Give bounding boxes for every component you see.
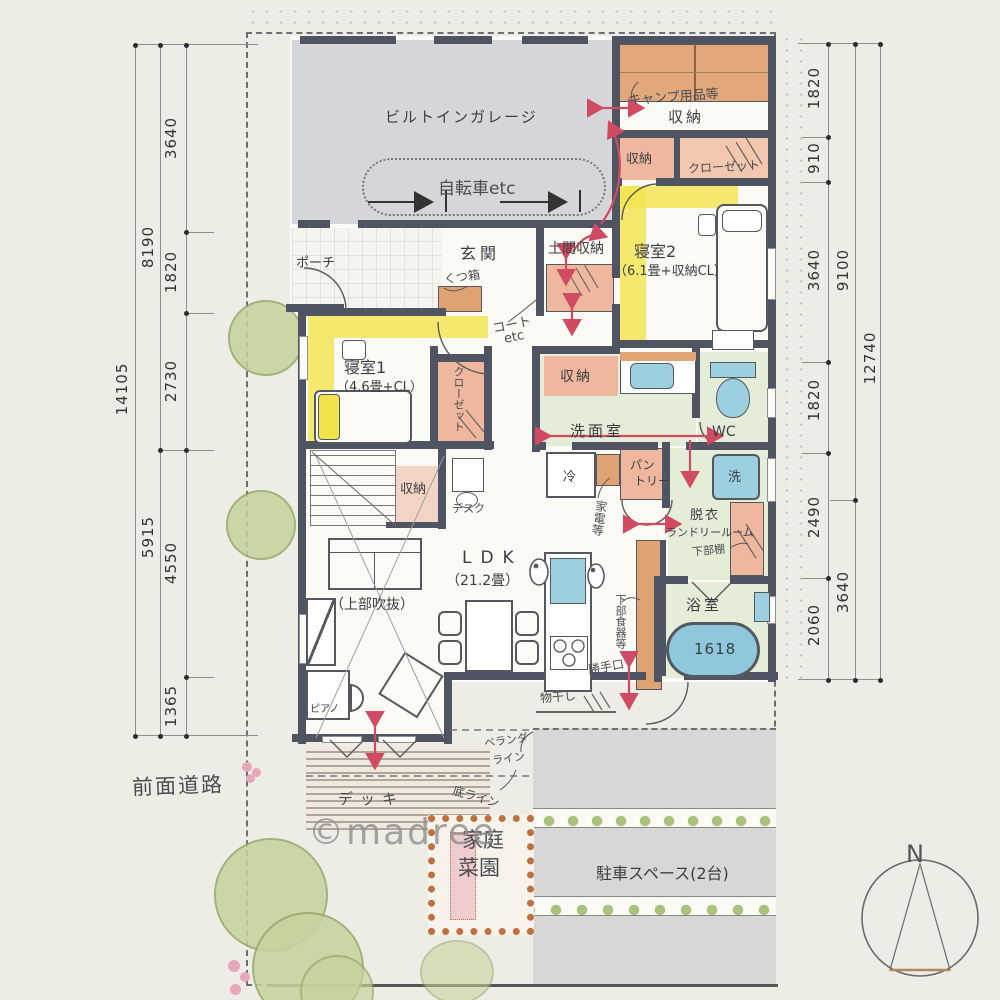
- dining-chair: [515, 640, 539, 665]
- dim-dot: [826, 42, 831, 47]
- dim-dot: [158, 43, 163, 48]
- parking-area: [533, 728, 776, 984]
- compass-n-label: N: [906, 840, 924, 868]
- wall: [536, 220, 544, 316]
- dim-line-left-mid: [160, 45, 161, 736]
- pantry-label-1: パン: [630, 456, 655, 473]
- compass-icon: [862, 860, 978, 976]
- pantry-label-2: トリー: [634, 472, 670, 489]
- bedroom1-name: 寝室1: [344, 354, 386, 378]
- dim-dot: [184, 311, 189, 316]
- parking-green-strip: [533, 896, 776, 916]
- bedroom2-size: （6.1畳+収納CL）: [614, 260, 727, 279]
- dim-label: 2060: [805, 595, 821, 655]
- dim-label: 1820: [805, 58, 821, 118]
- dim-label: 2730: [162, 351, 178, 411]
- window: [767, 388, 776, 418]
- doma-shelf: [546, 264, 614, 312]
- pillow-bedroom1: [318, 394, 340, 440]
- entrance-label: 玄関: [460, 240, 500, 264]
- wall: [292, 734, 452, 742]
- dim-tick: [135, 735, 258, 736]
- dim-dot: [853, 498, 858, 503]
- parking-label: 駐車スペース(2台): [596, 860, 729, 884]
- storage-small-label: 収納: [626, 148, 652, 167]
- washer-label: 洗: [728, 466, 741, 485]
- doma-storage-label: 土間収納: [548, 238, 604, 258]
- wash-storage-label: 収納: [560, 366, 592, 386]
- ldk-name: LDK: [462, 548, 523, 568]
- dim-dot: [826, 451, 831, 456]
- wall: [768, 36, 776, 348]
- bicycle-label: 自転車etc: [438, 174, 515, 199]
- dim-dot: [133, 734, 138, 739]
- floor-plan-canvas: 3640 1820 2730 4550 1365 8190 5915 14105…: [0, 0, 1000, 1000]
- dim-tick: [802, 578, 828, 579]
- desk: [452, 458, 484, 492]
- dim-tick: [830, 500, 855, 501]
- dim-label: 1365: [162, 676, 178, 736]
- flowers: [228, 960, 240, 972]
- wall: [298, 220, 330, 228]
- front-road-label: 前面道路: [132, 768, 225, 801]
- dining-chair: [515, 611, 539, 636]
- dim-dot: [184, 230, 189, 235]
- wall: [674, 133, 680, 180]
- wall: [300, 36, 396, 44]
- piano-label: ピアノ: [310, 700, 339, 715]
- dim-label: 3640: [162, 108, 178, 168]
- camp-storage-label-2: 収納: [668, 106, 704, 127]
- dim-line-left-inner: [186, 45, 187, 736]
- wall: [484, 346, 492, 450]
- wall: [532, 346, 540, 452]
- dim-label: 1820: [162, 242, 178, 302]
- dining-chair: [438, 611, 462, 636]
- garage-label: ビルトインガレージ: [385, 106, 538, 127]
- window: [767, 458, 776, 502]
- dim-label: 910: [805, 128, 821, 188]
- dining-table: [465, 600, 513, 672]
- dim-tick: [802, 453, 828, 454]
- dining-chair: [438, 640, 462, 665]
- dim-dot: [826, 135, 831, 140]
- flowers: [246, 774, 255, 783]
- dim-dot: [184, 734, 189, 739]
- wall: [430, 354, 492, 362]
- watermark: ©madree: [308, 812, 496, 853]
- wall: [612, 130, 776, 138]
- dim-tick: [802, 362, 828, 363]
- stipple-top-band: [246, 6, 776, 32]
- dim-tick: [798, 43, 882, 44]
- wall: [572, 442, 658, 450]
- dim-line-left-outer: [135, 45, 136, 736]
- wall: [522, 36, 588, 44]
- kitchen-sink: [550, 558, 586, 604]
- dim-label: 3640: [834, 562, 850, 622]
- bush: [420, 940, 494, 1000]
- staircase: [310, 450, 396, 526]
- vanity-sink: [630, 363, 674, 389]
- dim-dot: [826, 678, 831, 683]
- closet1-label: クローゼット: [450, 366, 466, 446]
- dim-label: 8190: [139, 217, 155, 277]
- wall: [358, 220, 620, 228]
- dim-tick: [798, 679, 882, 680]
- stove: [550, 636, 588, 670]
- drying-label: 物干し: [539, 686, 576, 706]
- dim-tick: [186, 677, 214, 678]
- dim-dot: [853, 678, 858, 683]
- dim-line-right-mid: [855, 44, 856, 680]
- closet-box-bedroom2: [712, 330, 754, 350]
- porch-label: ポーチ: [296, 252, 335, 271]
- window: [299, 336, 308, 380]
- sofa-divider: [374, 552, 375, 588]
- dim-label: 9100: [834, 240, 850, 300]
- dim-label: 14105: [113, 354, 129, 424]
- dim-label: 5915: [139, 507, 155, 567]
- desk-label: デスク: [452, 500, 485, 516]
- garden-label-2: 菜園: [458, 852, 500, 882]
- dim-dot: [853, 42, 858, 47]
- dim-label: 4550: [162, 533, 178, 593]
- wall: [438, 449, 446, 529]
- flowers: [240, 972, 250, 982]
- dim-line-right-outer: [880, 44, 881, 680]
- ldk-size: （21.2畳）: [446, 570, 519, 590]
- wall: [654, 576, 662, 682]
- wall: [730, 576, 776, 584]
- parking-green-strip: [533, 808, 776, 828]
- bedroom1-size: （4.6畳+CL）: [336, 376, 423, 395]
- wall: [612, 36, 776, 44]
- dim-label: 3640: [805, 240, 821, 300]
- atrium-label: （上部吹抜）: [330, 594, 414, 614]
- fridge-label: 冷: [563, 466, 576, 485]
- toilet-bowl: [716, 378, 750, 418]
- wall: [532, 442, 546, 450]
- pillow-bedroom2: [722, 210, 762, 232]
- dim-dot: [158, 448, 163, 453]
- dim-tick: [186, 232, 214, 233]
- dim-dot: [184, 448, 189, 453]
- side-table-bedroom2: [698, 214, 716, 236]
- deck-label: デッキ: [338, 788, 404, 809]
- laundry-label-2: ランドリールーム: [666, 524, 754, 540]
- dim-dot: [184, 675, 189, 680]
- bedroom1-highlight-h: [308, 316, 488, 338]
- flowers: [230, 984, 241, 995]
- dim-label: 1820: [805, 370, 821, 430]
- wall: [686, 442, 776, 450]
- dim-tick: [135, 44, 258, 45]
- wall: [532, 346, 620, 354]
- dim-tick: [186, 313, 214, 314]
- dim-dot: [133, 43, 138, 48]
- wall: [434, 36, 492, 44]
- dim-dot: [826, 180, 831, 185]
- bathroom-label: 浴室: [686, 594, 722, 615]
- camp-shelf-line: [618, 72, 770, 73]
- tree: [226, 490, 296, 560]
- dim-dot: [184, 43, 189, 48]
- toilet-tank: [710, 362, 756, 378]
- dim-dot: [878, 42, 883, 47]
- wall: [298, 308, 446, 316]
- wc-label: WC: [712, 424, 736, 440]
- wall: [386, 522, 446, 528]
- dim-label: 2490: [805, 487, 821, 547]
- vanity-counter-band: [620, 352, 696, 361]
- appliance-shelf: [596, 454, 620, 486]
- bedroom2-name: 寝室2: [634, 238, 676, 262]
- flowers: [242, 762, 252, 772]
- sliding-door: [322, 736, 362, 743]
- dim-dot: [826, 360, 831, 365]
- window: [767, 248, 776, 300]
- sofa: [328, 538, 422, 590]
- tub-size-label: 1618: [694, 640, 736, 658]
- wall: [612, 178, 622, 186]
- sofa-back-line: [330, 552, 420, 553]
- laundry-label-1: 脱衣: [690, 504, 720, 523]
- wall: [612, 36, 620, 278]
- sliding-door: [378, 736, 416, 743]
- shower-unit: [754, 592, 770, 622]
- dim-dot: [826, 576, 831, 581]
- washroom-label: 洗面室: [570, 420, 624, 441]
- dim-label: 12740: [861, 323, 877, 393]
- dim-dot: [878, 678, 883, 683]
- stair-storage-label: 収納: [400, 478, 426, 497]
